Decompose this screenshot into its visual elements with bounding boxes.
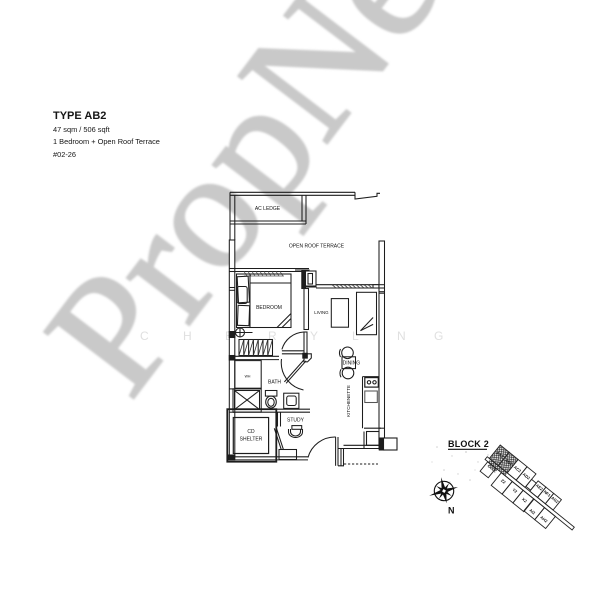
svg-text:N: N xyxy=(448,506,455,516)
